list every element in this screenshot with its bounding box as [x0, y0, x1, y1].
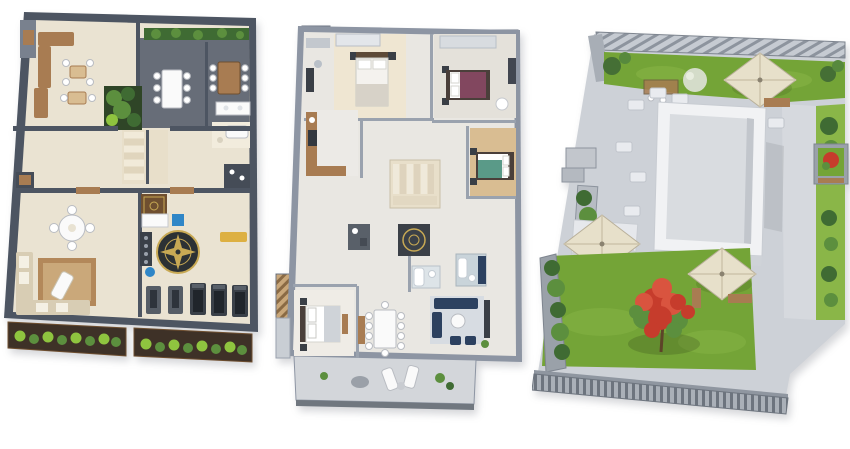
bench	[692, 288, 701, 308]
bedroom-2	[434, 34, 516, 118]
upper-floor-plan	[276, 26, 522, 410]
roof-terrace-plan	[532, 32, 848, 414]
exercise-mat	[220, 232, 247, 242]
bathroom-2	[456, 254, 486, 286]
living-room	[430, 296, 490, 348]
staircase	[390, 160, 440, 208]
structure-shadow	[764, 142, 784, 232]
dining-divider-wall	[205, 42, 208, 126]
treadmill	[232, 285, 248, 317]
staircase	[122, 130, 168, 184]
weight-bench	[168, 286, 183, 314]
side-path	[782, 104, 816, 320]
sideboard-console	[216, 102, 250, 115]
top-planting-strip	[144, 28, 249, 40]
dining-console	[358, 316, 365, 344]
exercise-ball	[145, 267, 155, 277]
garden-sculpture	[351, 376, 369, 388]
wood-dining-table	[210, 62, 248, 94]
dumbbell-rack	[140, 232, 152, 266]
bathroom-1	[412, 266, 440, 288]
wardrobe	[336, 34, 380, 46]
door	[76, 187, 100, 194]
tv-console	[484, 300, 490, 338]
gym-cabinet	[142, 214, 168, 227]
pale-tree	[683, 68, 707, 92]
hall-cabinet	[16, 172, 34, 188]
plant	[481, 340, 489, 348]
pale-tree-highlight	[686, 72, 694, 80]
kitchen-island	[348, 224, 370, 250]
door	[170, 187, 194, 194]
upper-floor-plan-image	[272, 18, 534, 430]
treadmill	[211, 284, 227, 316]
ground-floor-plan-image	[0, 0, 266, 396]
floor-medallion	[398, 224, 430, 256]
plant	[320, 372, 328, 380]
ground-floor-plan	[4, 12, 258, 362]
compass-floor-medallion	[157, 231, 199, 273]
entry-closet	[20, 20, 36, 58]
treadmill	[190, 283, 206, 315]
floor-plan-collage	[0, 0, 850, 449]
lounge-nook	[212, 122, 250, 148]
sunken-garden-square	[814, 144, 848, 184]
long-dining-table	[154, 70, 191, 108]
roof-terrace-plan-image	[532, 22, 850, 426]
facade-planter-left	[8, 322, 126, 356]
bedroom-1	[334, 34, 406, 118]
pantry-counter	[224, 164, 250, 188]
wardrobe	[440, 36, 496, 48]
gym-stool	[172, 214, 184, 226]
side-balcony	[276, 318, 290, 358]
kitchen	[306, 110, 358, 176]
bench	[764, 98, 790, 107]
weight-bench	[146, 286, 161, 314]
facade-planter-right	[134, 328, 252, 362]
bedroom-3	[470, 128, 516, 196]
bedroom-4	[294, 290, 354, 356]
indoor-planter	[104, 86, 142, 130]
bench	[728, 294, 752, 303]
